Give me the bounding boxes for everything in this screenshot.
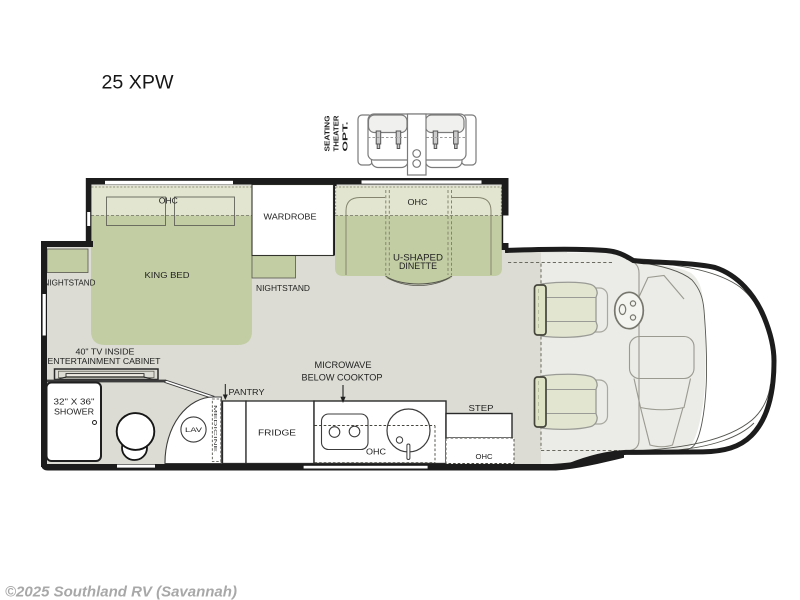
svg-text:THEATER: THEATER [332, 115, 341, 152]
svg-text:32" X 36": 32" X 36" [54, 398, 95, 407]
svg-text:OHC: OHC [366, 448, 386, 457]
svg-text:OHC: OHC [476, 452, 494, 461]
svg-text:STEP: STEP [469, 403, 495, 413]
svg-text:MEDICINE: MEDICINE [213, 405, 218, 452]
svg-text:BELOW COOKTOP: BELOW COOKTOP [302, 373, 383, 383]
svg-text:DINETTE: DINETTE [399, 261, 437, 271]
svg-text:25 XPW: 25 XPW [102, 72, 174, 93]
svg-text:OHC: OHC [408, 198, 428, 207]
svg-text:FRIDGE: FRIDGE [258, 428, 297, 438]
svg-text:SHOWER: SHOWER [54, 408, 94, 417]
svg-text:KING BED: KING BED [145, 270, 190, 280]
svg-text:SEATING: SEATING [323, 115, 332, 151]
svg-text:OPT.: OPT. [341, 122, 350, 152]
svg-text:©2025 Southland RV (Savannah): ©2025 Southland RV (Savannah) [5, 584, 237, 600]
svg-text:NIGHTSTAND: NIGHTSTAND [256, 284, 310, 293]
svg-text:LAV: LAV [185, 427, 203, 434]
svg-text:NIGHTSTAND: NIGHTSTAND [44, 279, 96, 288]
svg-text:OHC: OHC [159, 197, 178, 206]
svg-text:WARDROBE: WARDROBE [264, 212, 317, 222]
svg-text:PANTRY: PANTRY [229, 388, 266, 397]
svg-text:ENTERTAINMENT CABINET: ENTERTAINMENT CABINET [48, 357, 161, 366]
svg-text:40" TV INSIDE: 40" TV INSIDE [76, 348, 135, 357]
svg-text:MICROWAVE: MICROWAVE [315, 360, 372, 370]
